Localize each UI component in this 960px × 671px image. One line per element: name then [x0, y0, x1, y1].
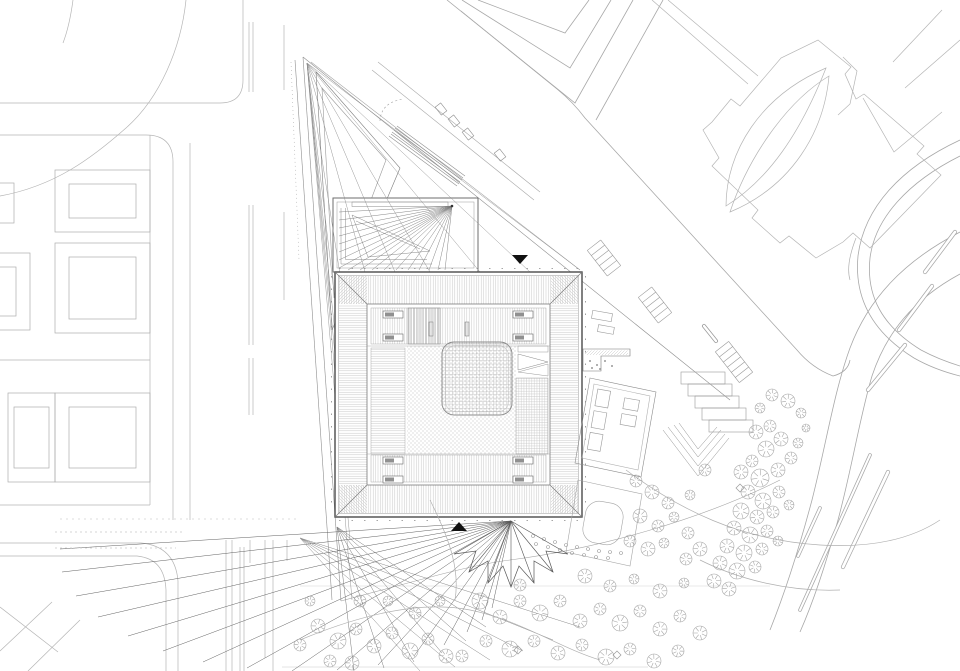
- main-building-shape: [515, 478, 524, 482]
- main-building-shape: [518, 346, 548, 352]
- main-building-shape: [339, 276, 578, 304]
- site-plan-page: [0, 0, 960, 671]
- main-building-shape: [385, 459, 394, 463]
- east-structures-shape: [596, 364, 598, 366]
- main-building-shape: [550, 304, 579, 485]
- markers-shape: [451, 205, 454, 208]
- east-structures-shape: [591, 367, 593, 369]
- main-building-shape: [429, 322, 433, 336]
- main-building-shape: [385, 336, 394, 340]
- east-structures-shape: [585, 351, 628, 356]
- main-building-shape: [442, 342, 512, 415]
- main-building-shape: [465, 322, 469, 336]
- main-building-shape: [385, 478, 394, 482]
- site-plan-canvas: [0, 0, 960, 671]
- main-building-shape: [371, 348, 405, 454]
- main-building-shape: [339, 485, 578, 513]
- east-structures-shape: [604, 360, 606, 362]
- main-building-shape: [515, 459, 524, 463]
- main-building: [332, 269, 586, 521]
- main-building-shape: [515, 313, 524, 317]
- east-structures-shape: [611, 365, 613, 367]
- main-building-shape: [515, 336, 524, 340]
- east-structures-shape: [599, 368, 601, 370]
- main-building-shape: [339, 304, 367, 485]
- main-building-shape: [516, 378, 548, 454]
- east-structures-shape: [589, 360, 591, 362]
- main-building-shape: [385, 313, 394, 317]
- main-building-shape: [408, 308, 440, 344]
